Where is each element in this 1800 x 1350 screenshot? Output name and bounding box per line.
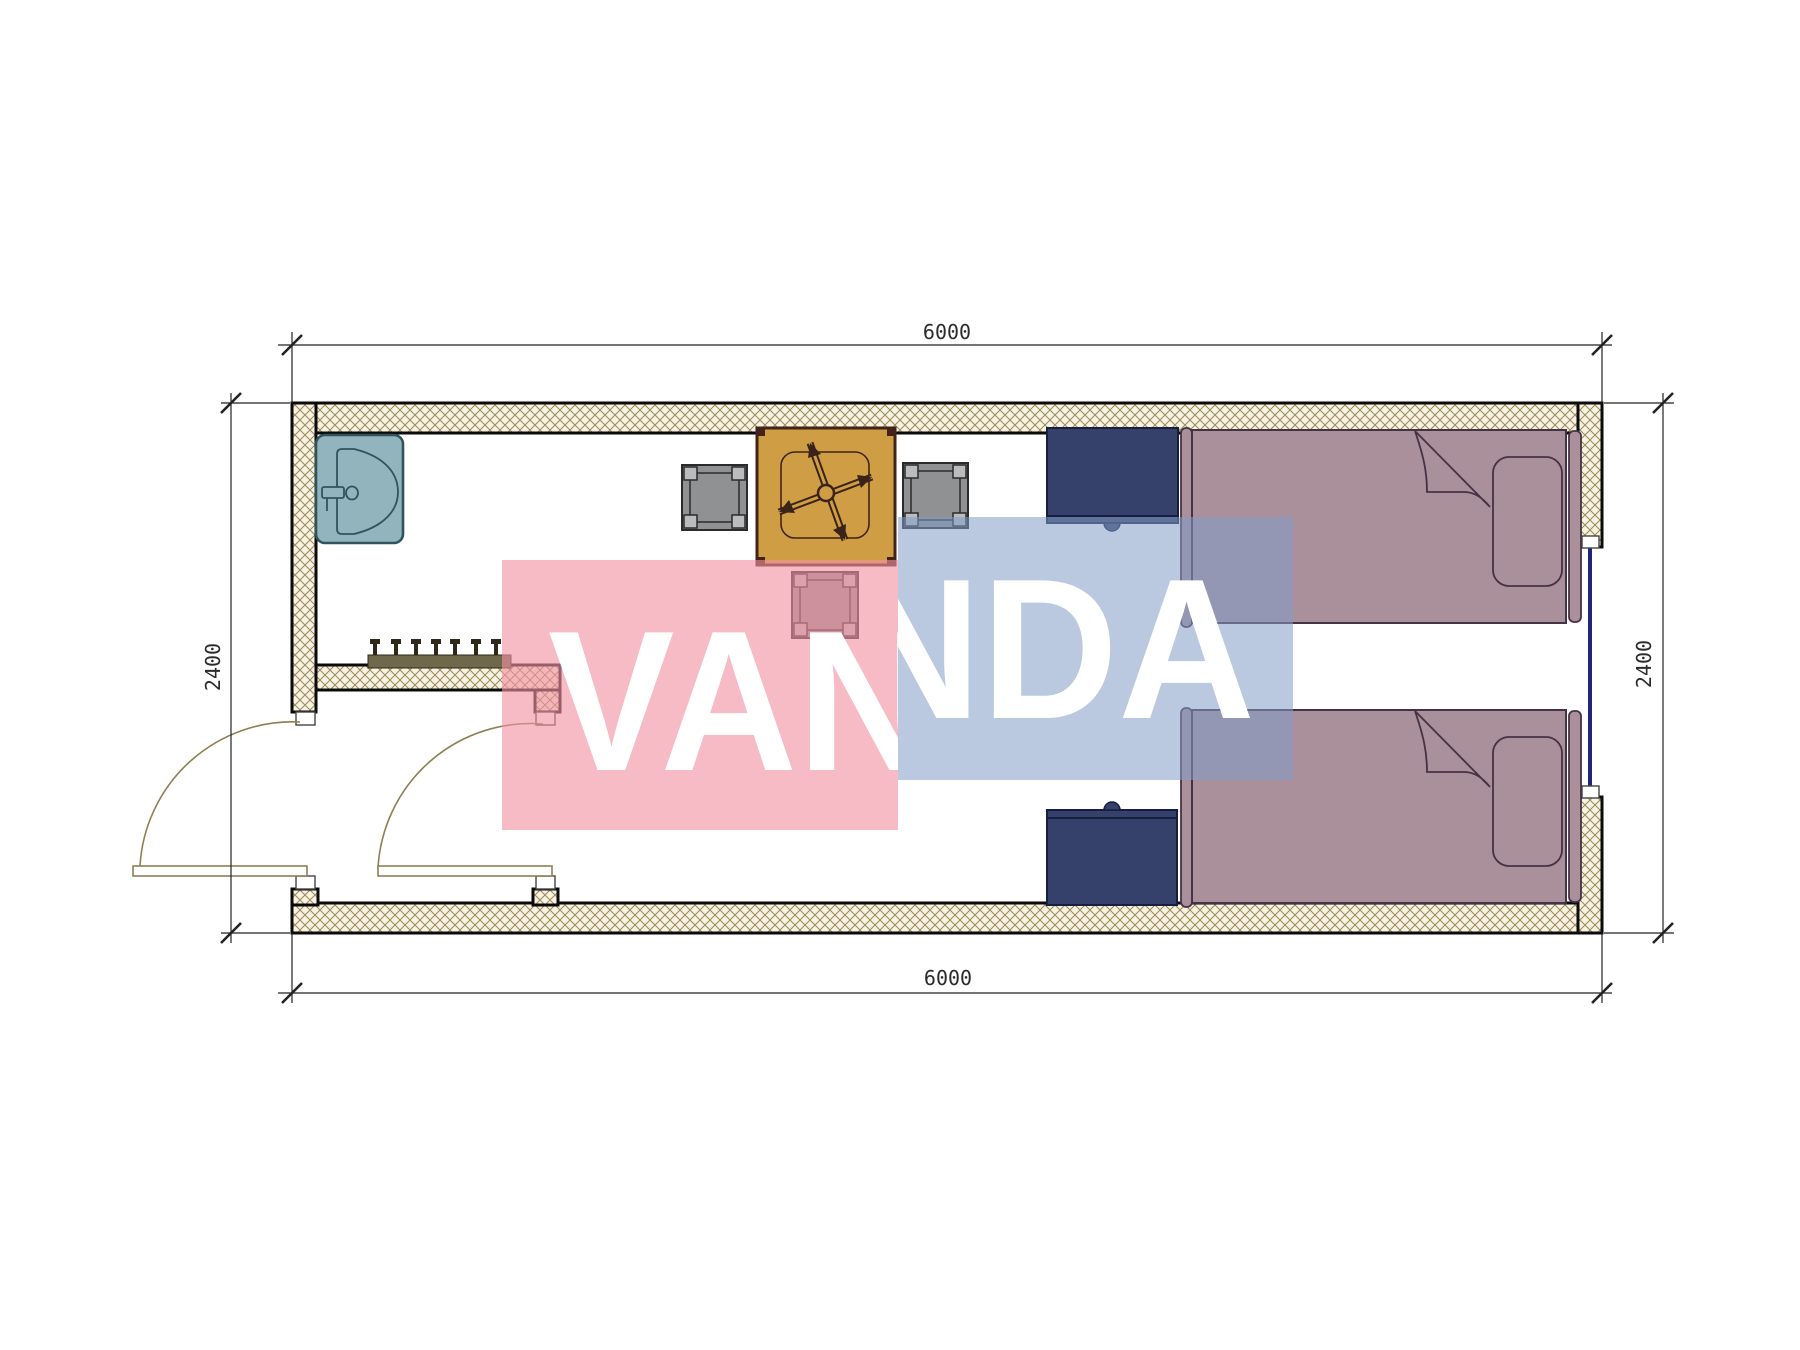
coat-hooks — [370, 639, 501, 655]
left-wall — [292, 403, 316, 712]
coat-hook-icon — [471, 639, 481, 655]
table-corner — [887, 429, 894, 436]
door-swing-arc — [140, 722, 300, 866]
desk-top — [1047, 428, 1178, 531]
corner-upstand-left — [292, 889, 318, 905]
window-jamb — [1582, 536, 1599, 548]
bed-footboard — [1569, 711, 1581, 902]
dim-text-left: 2400 — [201, 643, 225, 691]
door-post-block — [533, 889, 558, 905]
dining-table — [757, 428, 895, 565]
dim-text-bottom: 6000 — [924, 966, 972, 990]
bottom-wall — [292, 903, 1602, 933]
bed-pillow — [1493, 457, 1562, 586]
door-jamb — [296, 876, 315, 889]
dim-text-top: 6000 — [923, 320, 971, 344]
window-jamb — [1582, 786, 1599, 798]
door-jamb — [536, 876, 555, 889]
sink-faucet — [322, 487, 344, 498]
coat-hook-icon — [370, 639, 380, 655]
coat-hook-icon — [411, 639, 421, 655]
coat-hook-icon — [431, 639, 441, 655]
desk-knob — [1104, 802, 1120, 810]
coat-rack — [368, 639, 511, 668]
table-corner — [758, 429, 765, 436]
door-leaf — [133, 866, 307, 876]
coat-rack-bar — [368, 655, 511, 668]
bed-pillow — [1493, 737, 1562, 866]
dim-text-right: 2400 — [1632, 640, 1656, 688]
window-glazing — [1588, 547, 1592, 786]
top-wall — [292, 403, 1602, 433]
floor-plan-page: 6000 6000 2400 2400 VANDA VANDA — [0, 0, 1800, 1350]
doors — [133, 722, 552, 876]
coat-hook-icon — [391, 639, 401, 655]
sink-drain — [346, 487, 358, 500]
floor-plan-canvas: 6000 6000 2400 2400 VANDA VANDA — [0, 0, 1800, 1350]
sink — [316, 435, 403, 543]
watermark: VANDA VANDA — [502, 517, 1293, 830]
bed-footboard — [1569, 431, 1581, 622]
door-leaf — [378, 866, 552, 876]
coat-hook-icon — [450, 639, 460, 655]
chair-left — [682, 465, 747, 530]
coat-hook-icon — [491, 639, 501, 655]
door-jamb — [296, 712, 315, 725]
desk-bottom — [1047, 802, 1177, 905]
